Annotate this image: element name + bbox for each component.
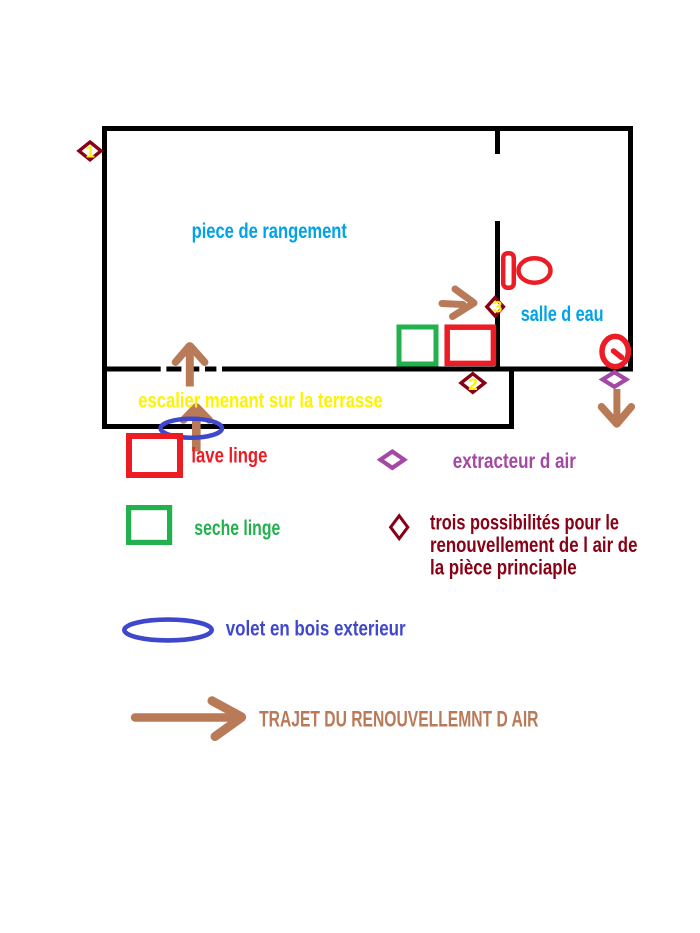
svg-text:3: 3	[493, 298, 502, 317]
svg-text:TRAJET DU RENOUVELLEMNT D AIR: TRAJET DU RENOUVELLEMNT D AIR	[259, 708, 539, 732]
svg-text:escalier menant sur la terrass: escalier menant sur la terrasse	[138, 390, 383, 413]
svg-text:2: 2	[468, 375, 477, 394]
svg-text:la pièce princiaple: la pièce princiaple	[430, 557, 577, 580]
svg-text:extracteur d air: extracteur d air	[453, 450, 577, 473]
svg-text:volet en bois exterieur: volet en bois exterieur	[226, 618, 406, 641]
svg-text:1: 1	[86, 143, 95, 162]
svg-text:lave linge: lave linge	[191, 445, 267, 468]
svg-text:salle d eau: salle d eau	[521, 302, 604, 326]
svg-text:piece de rangement: piece de rangement	[192, 220, 348, 243]
svg-text:seche linge: seche linge	[194, 516, 280, 540]
svg-text:renouvellement de l air de: renouvellement de l air de	[430, 534, 637, 557]
svg-text:trois possibilités pour le: trois possibilités pour le	[430, 510, 619, 533]
